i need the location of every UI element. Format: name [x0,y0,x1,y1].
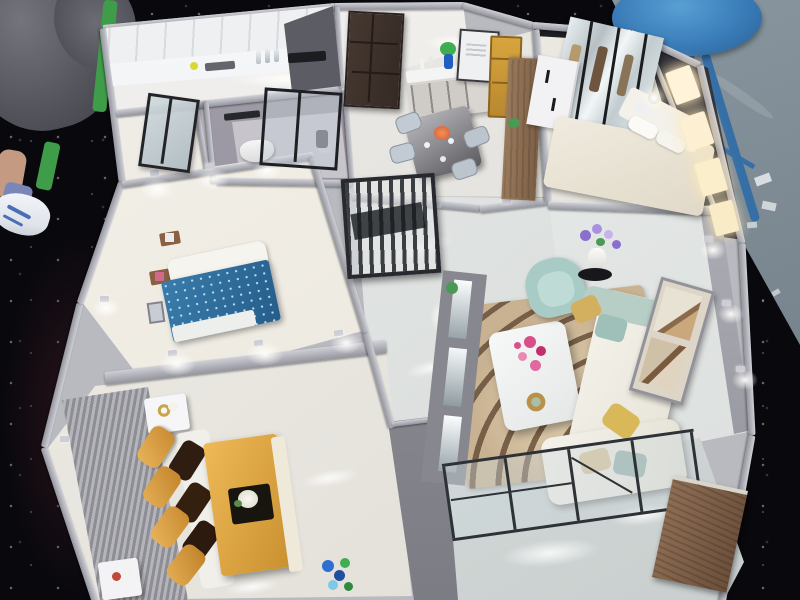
hanging-clothes [588,46,608,93]
gold-dish [524,392,548,412]
plant-greens [596,238,605,246]
white-flower-decor [168,402,178,411]
bathroom-vanity [316,130,328,148]
small-frame [147,301,166,324]
glass-brace [571,457,633,494]
deco-figure [420,58,425,69]
wardrobe-divider [601,24,621,133]
plant-vase [588,248,606,270]
outer-wall [335,2,463,10]
purple-flowers [580,230,591,241]
bottle [265,48,270,63]
red-decor [112,572,121,581]
table-glassware [424,142,430,148]
white-decor [122,566,132,575]
pink-flowers [518,352,527,361]
mirror-strip [443,347,467,407]
bedside-lamp [648,92,660,104]
front-door [344,11,405,110]
paper-scrap [747,222,757,229]
pink-flowers [536,346,546,356]
table-glassware [448,138,454,144]
flower-pot-greens [340,558,350,568]
art-panel [639,337,688,392]
glass-frame-bar [630,440,643,512]
purple-flowers [612,240,621,249]
partition-plant [508,118,520,128]
blue-flower-pot [334,570,345,581]
shower-screen [259,87,342,170]
blue-vase [444,54,453,69]
tv-wall-plant [446,282,458,294]
flower-greens [234,500,242,507]
table-flowers-orange [434,126,450,140]
photo-canvas [0,0,800,600]
plant-stand [578,268,612,281]
shelf-photo [155,272,164,281]
glass-frame-bar [504,458,517,530]
pink-flowers [524,336,536,348]
art-panel [653,286,702,341]
purple-flowers [604,230,613,239]
blue-flower-pot [322,560,334,572]
bottle [274,49,279,62]
pink-flowers [514,342,521,349]
bottle [256,50,261,64]
pink-flowers [530,360,541,371]
blue-flower-pot [328,580,338,590]
art-frame-marks [466,43,487,58]
flower-pot-greens [344,582,353,591]
deco-figure [429,56,434,66]
shelf-photo [165,233,174,242]
purple-flowers [592,224,602,234]
yellow-jar [190,62,198,70]
table-glassware [440,156,446,162]
